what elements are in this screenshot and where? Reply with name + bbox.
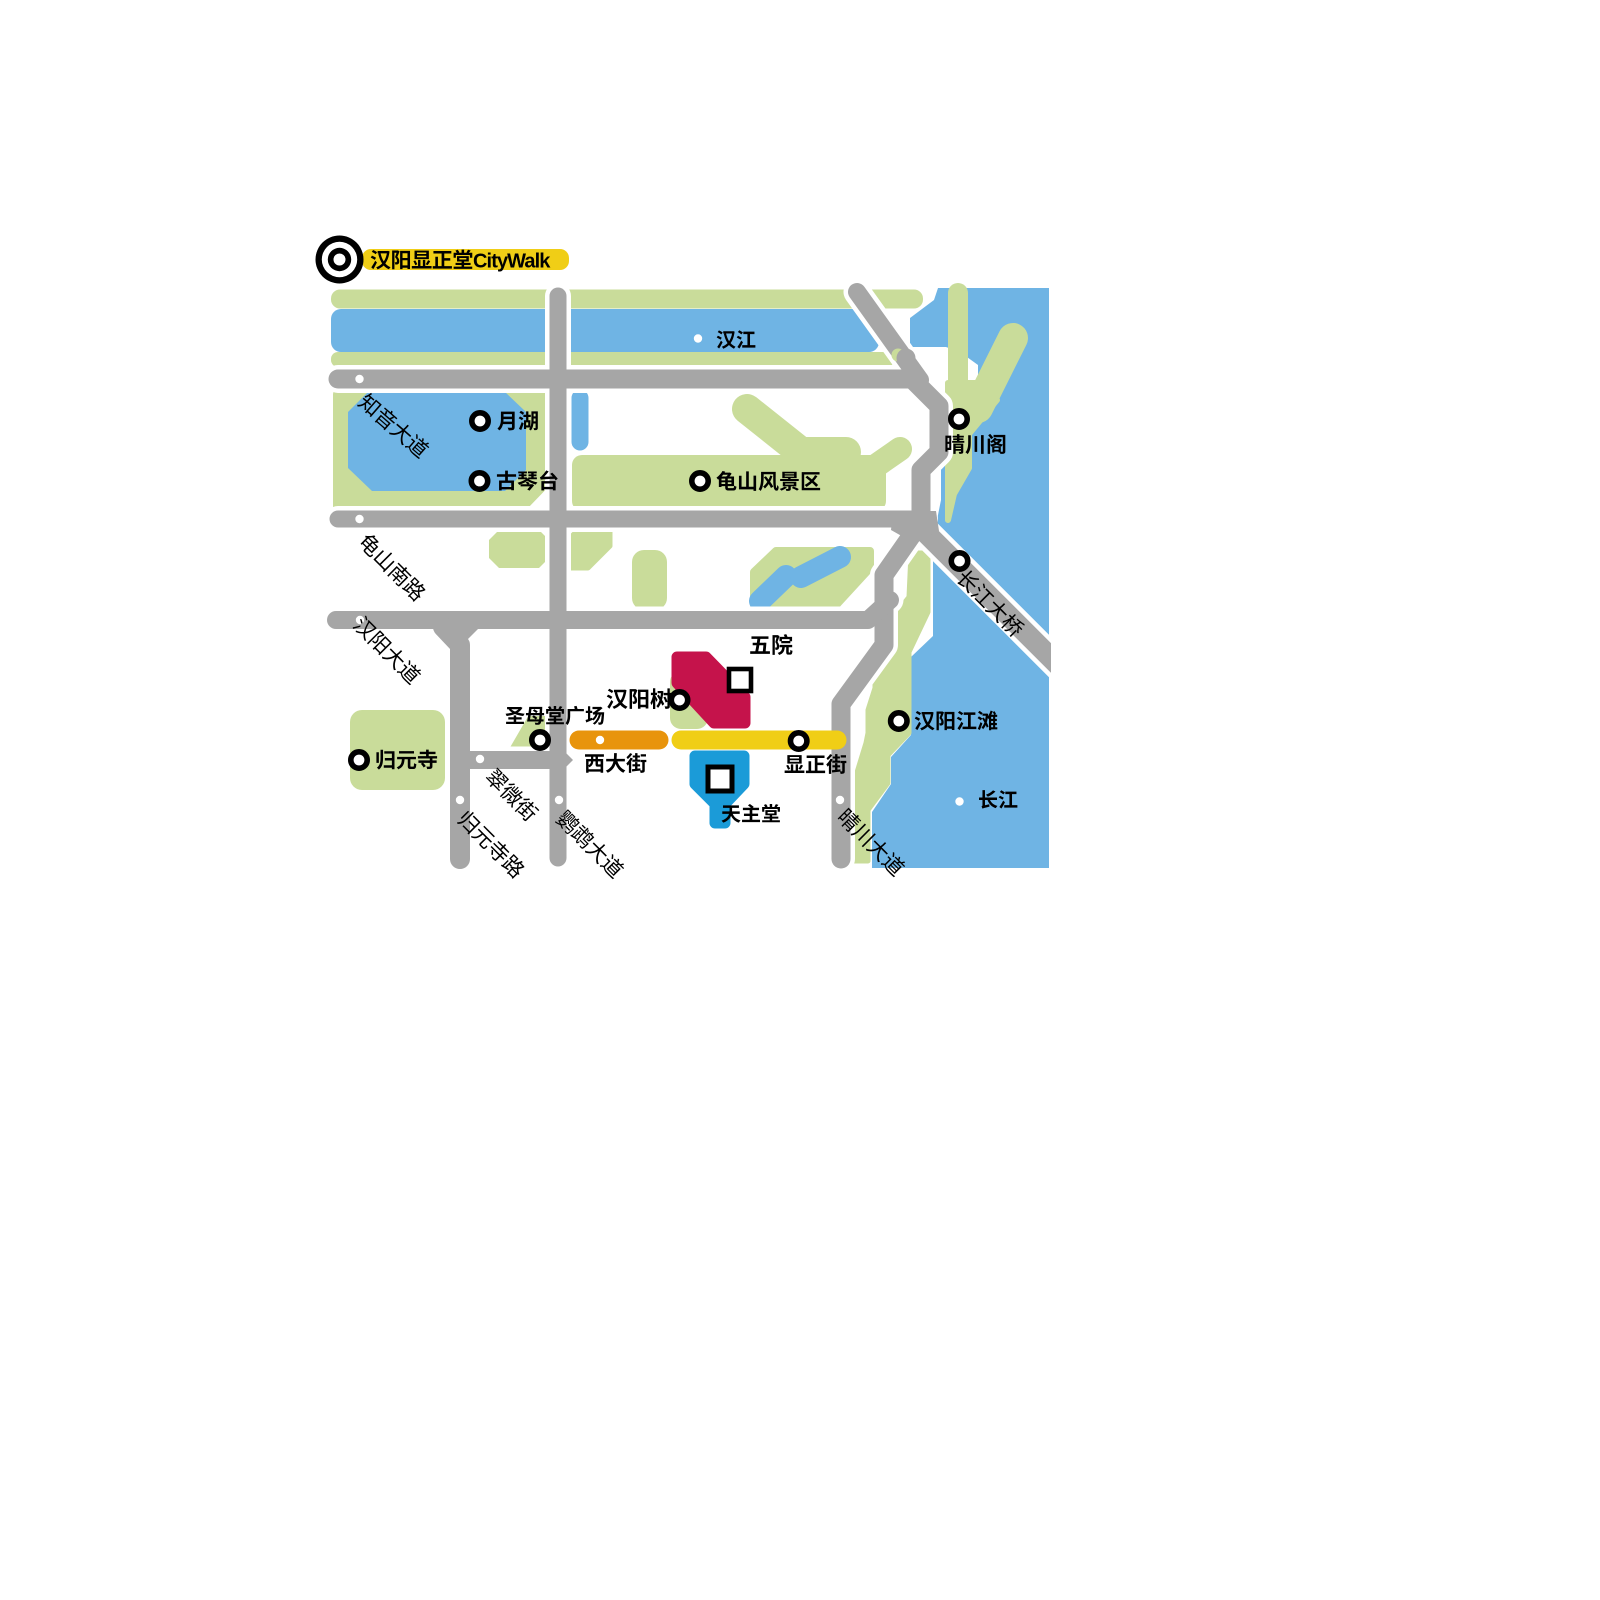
svg-text:CityWalk: CityWalk <box>473 251 551 273</box>
